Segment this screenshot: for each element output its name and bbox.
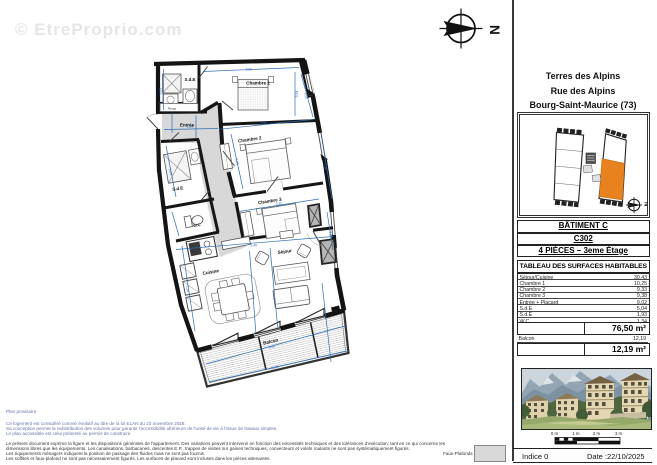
svg-text:Entrée: Entrée: [180, 123, 195, 128]
svg-text:Rangt: Rangt: [168, 107, 176, 111]
svg-text:Chambre 1: Chambre 1: [246, 81, 270, 86]
svg-text:3 m: 3 m: [615, 431, 622, 436]
svg-text:2 m: 2 m: [593, 431, 600, 436]
svg-text:3,10: 3,10: [323, 163, 328, 170]
svg-text:Séjour: Séjour: [277, 248, 292, 255]
svg-text:3,06: 3,06: [260, 121, 267, 126]
svg-text:4,45: 4,45: [250, 243, 257, 248]
svg-text:S.d.E: S.d.E: [185, 77, 196, 82]
svg-text:3,05: 3,05: [234, 158, 239, 165]
svg-text:3,16: 3,16: [303, 92, 309, 100]
svg-text:1 m: 1 m: [573, 431, 580, 436]
svg-text:2,57: 2,57: [328, 231, 333, 238]
svg-text:0 m: 0 m: [551, 431, 558, 436]
svg-text:2,62: 2,62: [159, 88, 163, 95]
svg-text:3,54: 3,54: [295, 91, 299, 98]
svg-text:N: N: [487, 25, 502, 35]
svg-text:Chambre 2: Chambre 2: [238, 135, 263, 143]
svg-text:2,90: 2,90: [246, 67, 253, 71]
svg-text:S.d.E: S.d.E: [172, 185, 184, 192]
svg-text:W.C: W.C: [193, 222, 201, 228]
svg-text:N: N: [642, 202, 647, 206]
svg-text:Cuisine: Cuisine: [202, 268, 220, 276]
